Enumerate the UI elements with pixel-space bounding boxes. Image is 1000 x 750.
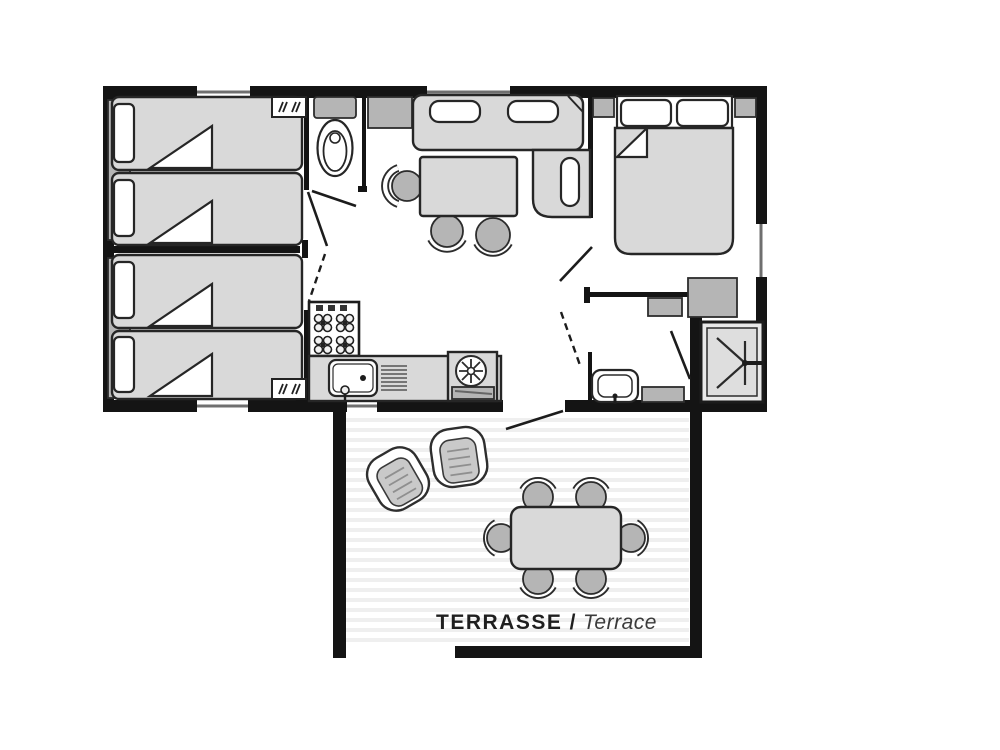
- sofa-cushion: [508, 101, 558, 122]
- twin-bedroom-bottom: [108, 255, 306, 399]
- washbasin-icon: [592, 370, 638, 404]
- terrace: TERRASSE /Terrace: [333, 412, 702, 658]
- dining-chair: [392, 171, 422, 201]
- cabinet: [648, 298, 682, 316]
- single-bed-3: [112, 255, 302, 328]
- wardrobe-shelves-icon: [272, 379, 306, 399]
- twin-bedroom-top: [108, 97, 306, 245]
- pillow: [621, 100, 671, 126]
- terrace-label: TERRASSE /Terrace: [436, 611, 657, 634]
- garden-table: [511, 507, 621, 569]
- dining-chair: [476, 218, 510, 252]
- wardrobe: [688, 278, 737, 317]
- terrace-label-en: Terrace: [583, 611, 657, 634]
- side-cabinet: [368, 97, 412, 128]
- terrace-wall-right: [690, 412, 702, 658]
- shower-icon: [701, 322, 763, 402]
- toilet-icon: [314, 97, 356, 176]
- pillow: [114, 180, 134, 236]
- draining-board: [381, 366, 407, 390]
- pillow: [114, 337, 134, 392]
- refrigerator-icon: [448, 352, 497, 401]
- nightstand: [593, 98, 614, 117]
- pillow: [114, 262, 134, 318]
- bathroom-cabinet: [642, 387, 684, 402]
- lounge-chair-2: [428, 425, 490, 490]
- corner-seat: [533, 150, 590, 217]
- terrace-label-fr: TERRASSE /: [436, 611, 577, 634]
- double-bed: [615, 96, 733, 254]
- sofa: [413, 95, 583, 150]
- terrace-wall-left: [333, 412, 346, 658]
- pillow: [114, 104, 134, 162]
- wc-room: [314, 97, 356, 176]
- sofa-cushion: [430, 101, 480, 122]
- single-bed-2: [112, 173, 302, 245]
- floor-plan: TERRASSE /Terrace: [0, 0, 1000, 750]
- dining-chair: [431, 215, 463, 247]
- dining-table: [420, 157, 517, 216]
- wardrobe-shelves-icon: [272, 97, 306, 117]
- stove-icon: [309, 302, 359, 356]
- terrace-wall-bottom: [455, 646, 702, 658]
- floor-plan-canvas: TERRASSE /Terrace: [0, 0, 1000, 750]
- nightstand: [735, 98, 756, 117]
- pillow: [677, 100, 728, 126]
- sink-icon: [329, 360, 377, 400]
- corner-seat-cushion: [561, 158, 579, 206]
